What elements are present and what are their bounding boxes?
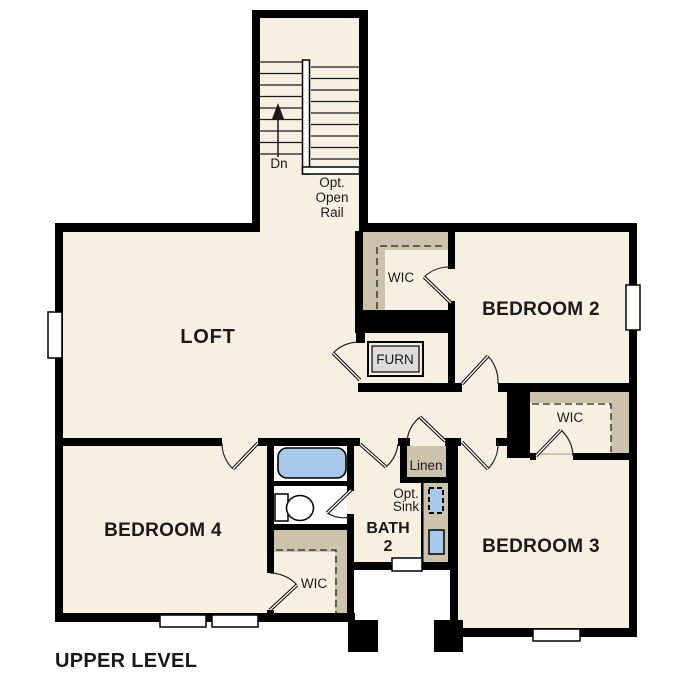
wall-wic3-bottom-left [530, 453, 536, 460]
wall-wic3-bottom-right [573, 453, 629, 460]
opt-sink-label-line2: Sink [393, 499, 420, 514]
bath-label-line1: BATH [366, 520, 409, 537]
bath-label-line2: 2 [384, 538, 393, 555]
bedroom4-window-left [160, 615, 206, 627]
wall-top-right [360, 223, 637, 232]
wall-tub-room-right [347, 438, 354, 482]
wic-bedroom3-label: WIC [557, 410, 583, 425]
wall-wic4-left-jamb [267, 610, 274, 622]
linen-label: Linen [409, 458, 442, 473]
floor-plan-page: LOFT BEDROOM 2 BEDROOM 3 BEDROOM 4 BATH … [0, 0, 687, 687]
floor-plan-drawing: LOFT BEDROOM 2 BEDROOM 3 BEDROOM 4 BATH … [0, 0, 687, 687]
bedroom3-label: BEDROOM 3 [482, 536, 600, 557]
wall-furnace-bottom [358, 383, 462, 392]
pillar-left [348, 620, 378, 652]
wall-wic2-right-upper [448, 231, 455, 269]
stairs-note-line1: Opt. [319, 175, 345, 190]
bedroom2-window [626, 285, 640, 330]
wall-hall-wic3 [507, 390, 530, 458]
stair-rail-horizontal [303, 167, 360, 174]
wall-furnace-right [448, 333, 455, 385]
loft-window [48, 312, 62, 358]
wall-toilet-right-upper [347, 480, 354, 491]
stair-rail-vertical [303, 60, 310, 174]
furnace-label: FURN [376, 352, 414, 367]
bathtub [278, 448, 346, 478]
wall-toilet-wic4 [267, 524, 354, 530]
wall-bedroom3-left [450, 438, 458, 630]
bath-window [392, 558, 422, 571]
loft-label: LOFT [180, 326, 235, 348]
wall-bath-top-mid [398, 438, 410, 446]
bedroom2-label: BEDROOM 2 [482, 299, 600, 320]
pillar-right [434, 620, 463, 652]
wall-linen-bottom [400, 477, 455, 483]
bedroom3-window [533, 629, 580, 641]
sink [429, 530, 444, 554]
stairs-note-line3: Rail [320, 205, 343, 220]
wall-left [55, 223, 63, 622]
bedroom4-window-right [212, 615, 258, 627]
stairs-down-label: Dn [270, 156, 287, 171]
wall-tub-toilet-divider [274, 481, 347, 486]
wall-wic2-furnace-band [355, 310, 455, 333]
bedroom4-label: BEDROOM 4 [104, 520, 222, 541]
sink-counter-edge [421, 480, 424, 562]
wall-bay-left [347, 570, 354, 622]
toilet-bowl [287, 496, 314, 521]
wall-top-left [55, 223, 260, 232]
wall-loft-bedroom4 [55, 438, 222, 446]
wall-bath-left [267, 438, 274, 573]
open-bay-area [354, 570, 450, 620]
optional-sink [429, 488, 443, 513]
wall-stair-top [252, 10, 368, 18]
wall-loft-right [355, 231, 363, 311]
stairs-note-line2: Open [315, 190, 348, 205]
page-title: UPPER LEVEL [55, 650, 197, 672]
wall-stair-left [252, 10, 260, 232]
wic-bedroom2-label: WIC [388, 270, 414, 285]
wic-bedroom4-label: WIC [301, 576, 327, 591]
wall-stair-right [359, 10, 368, 232]
